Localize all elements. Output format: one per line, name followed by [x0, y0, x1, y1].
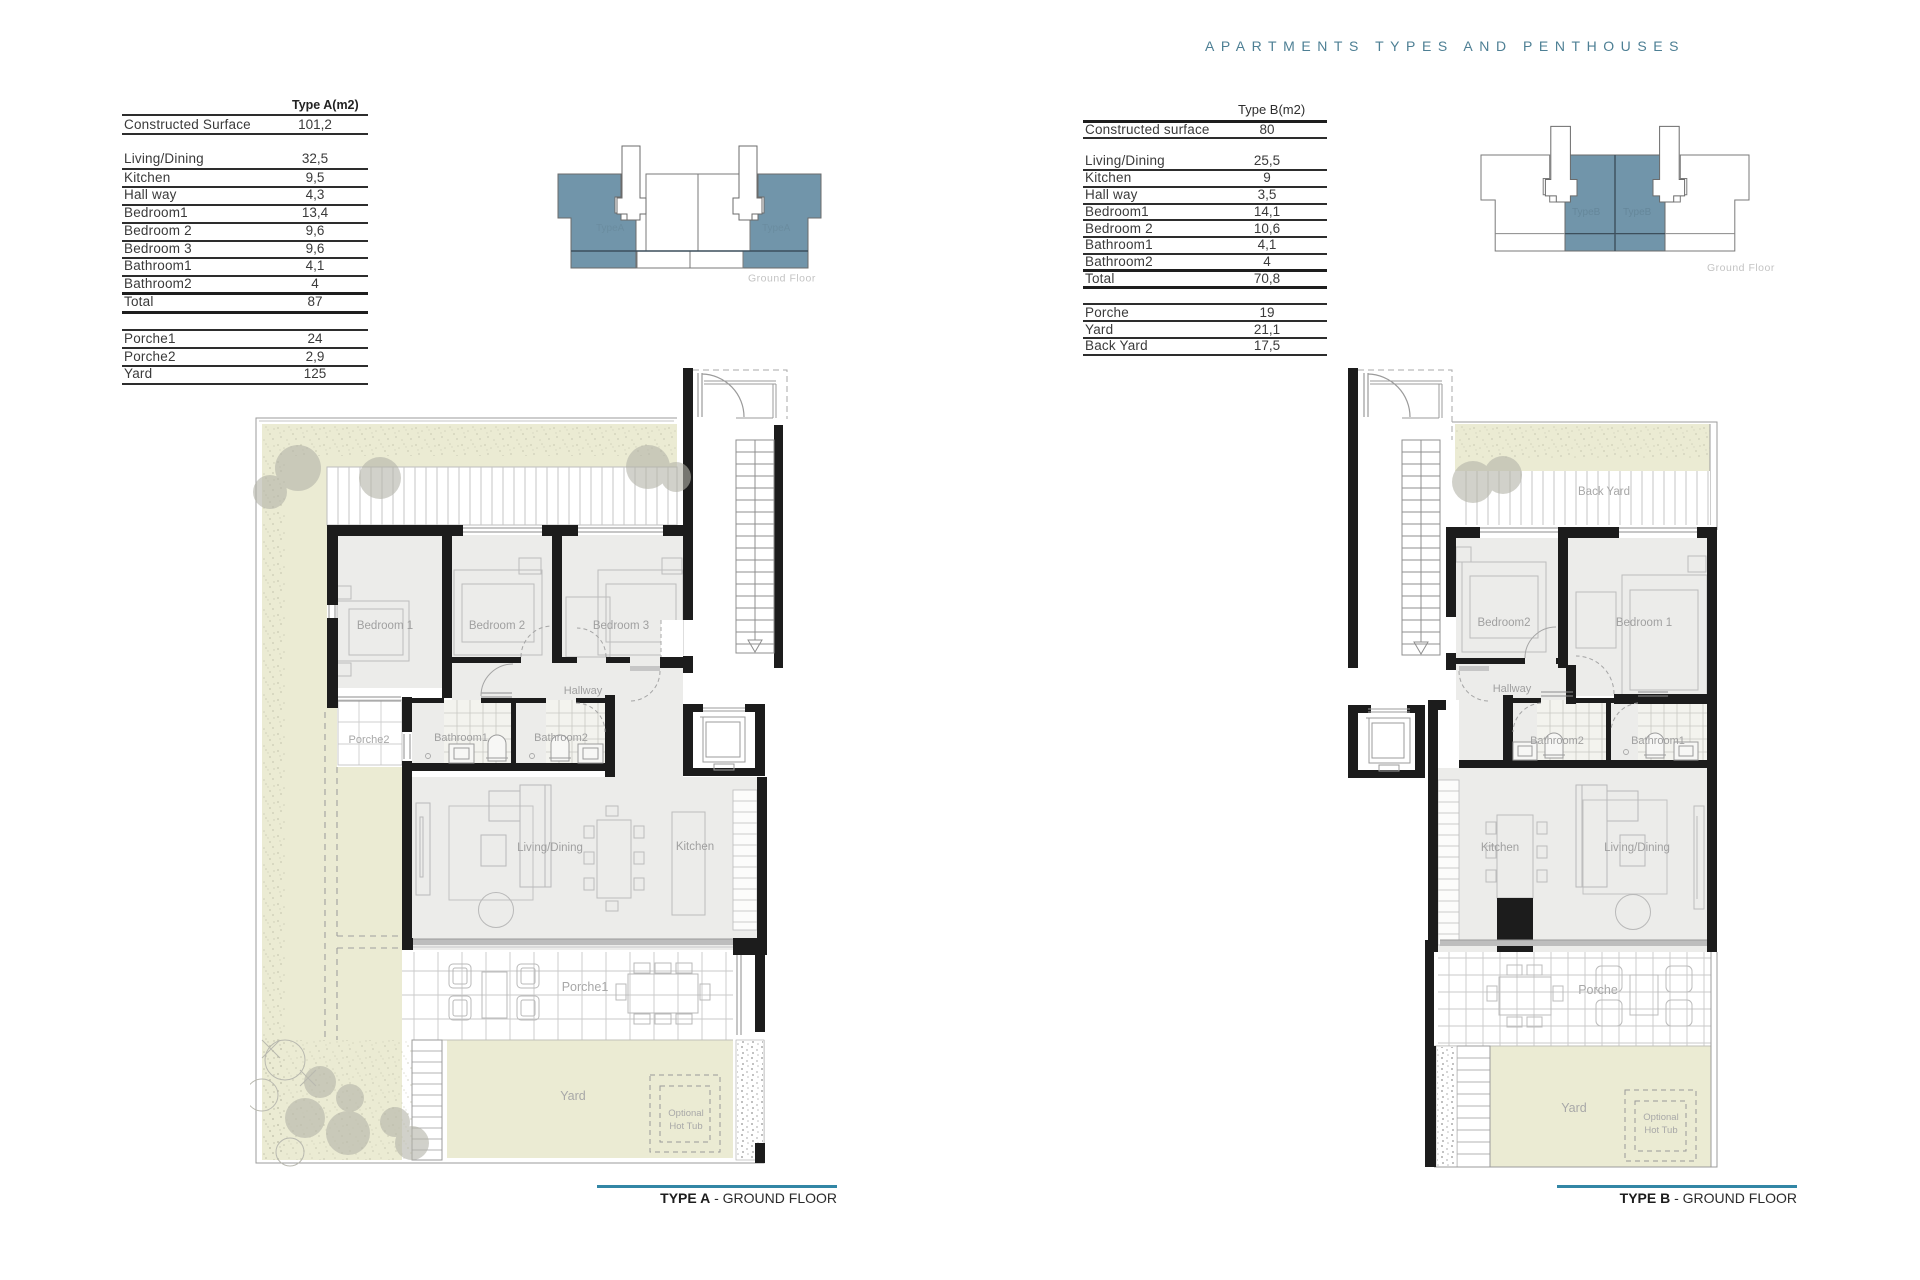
svg-text:Hallway: Hallway	[1493, 683, 1532, 695]
svg-text:Bedroom2: Bedroom2	[1477, 617, 1530, 629]
svg-text:Kitchen: Kitchen	[1481, 842, 1519, 854]
svg-text:Bathroom2: Bathroom2	[1530, 735, 1584, 747]
svg-text:Bedroom 3: Bedroom 3	[593, 620, 649, 632]
svg-text:TypeB: TypeB	[1623, 207, 1652, 218]
svg-text:Kitchen: Kitchen	[676, 841, 714, 853]
svg-text:Yard: Yard	[1561, 1101, 1587, 1115]
svg-text:Bathroom1: Bathroom1	[1631, 735, 1685, 747]
svg-text:TypeA: TypeA	[762, 223, 791, 234]
svg-text:Porche: Porche	[1578, 983, 1618, 997]
svg-text:Living/Dining: Living/Dining	[1604, 842, 1670, 854]
svg-text:TypeB: TypeB	[1572, 207, 1601, 218]
svg-text:Ground Floor: Ground Floor	[1707, 262, 1775, 274]
svg-text:TypeA: TypeA	[596, 223, 625, 234]
svg-text:Optional: Optional	[668, 1108, 703, 1119]
svg-text:Bathroom2: Bathroom2	[534, 732, 588, 744]
svg-text:Bedroom 2: Bedroom 2	[469, 620, 525, 632]
svg-text:Porche2: Porche2	[349, 734, 390, 746]
svg-text:Hallway: Hallway	[564, 685, 603, 697]
svg-text:Yard: Yard	[560, 1089, 586, 1103]
svg-text:Bedroom 1: Bedroom 1	[357, 620, 413, 632]
svg-text:Optional: Optional	[1643, 1112, 1678, 1123]
svg-text:Ground Floor: Ground Floor	[748, 273, 816, 285]
svg-text:Bathroom1: Bathroom1	[434, 732, 488, 744]
svg-text:Hot Tub: Hot Tub	[669, 1121, 702, 1132]
svg-text:Back Yard: Back Yard	[1578, 486, 1630, 498]
svg-text:Living/Dining: Living/Dining	[517, 842, 583, 854]
svg-text:Hot Tub: Hot Tub	[1644, 1125, 1677, 1136]
svg-text:Bedroom 1: Bedroom 1	[1616, 617, 1672, 629]
svg-text:Porche1: Porche1	[562, 980, 609, 994]
